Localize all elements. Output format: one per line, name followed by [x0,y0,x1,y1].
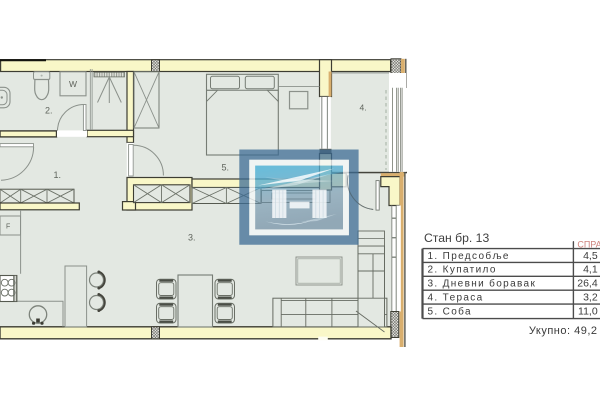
svg-text:2.: 2. [45,106,53,116]
svg-text:Укупно: 49,2: Укупно: 49,2 [529,325,598,337]
svg-text:5.: 5. [222,163,230,173]
svg-text:4. Тераса: 4. Тераса [428,292,484,303]
svg-text:4,1: 4,1 [583,264,598,276]
svg-text:4.: 4. [360,103,367,113]
svg-text:F: F [6,224,10,231]
svg-text:1.: 1. [54,170,62,180]
svg-text:W: W [69,79,77,89]
svg-text:2. Купатило: 2. Купатило [428,265,497,276]
svg-text:5. Соба: 5. Соба [428,305,472,317]
svg-text:4,5: 4,5 [583,250,598,262]
svg-text:11,0: 11,0 [578,305,598,317]
svg-text:3,2: 3,2 [583,291,598,303]
svg-text:Стан бр. 13: Стан бр. 13 [424,231,489,245]
svg-text:26,4: 26,4 [577,278,598,290]
svg-text:3. Дневни боравак: 3. Дневни боравак [428,278,537,290]
svg-text:1. Предсобље: 1. Предсобље [428,250,510,262]
svg-text:3.: 3. [188,233,196,243]
